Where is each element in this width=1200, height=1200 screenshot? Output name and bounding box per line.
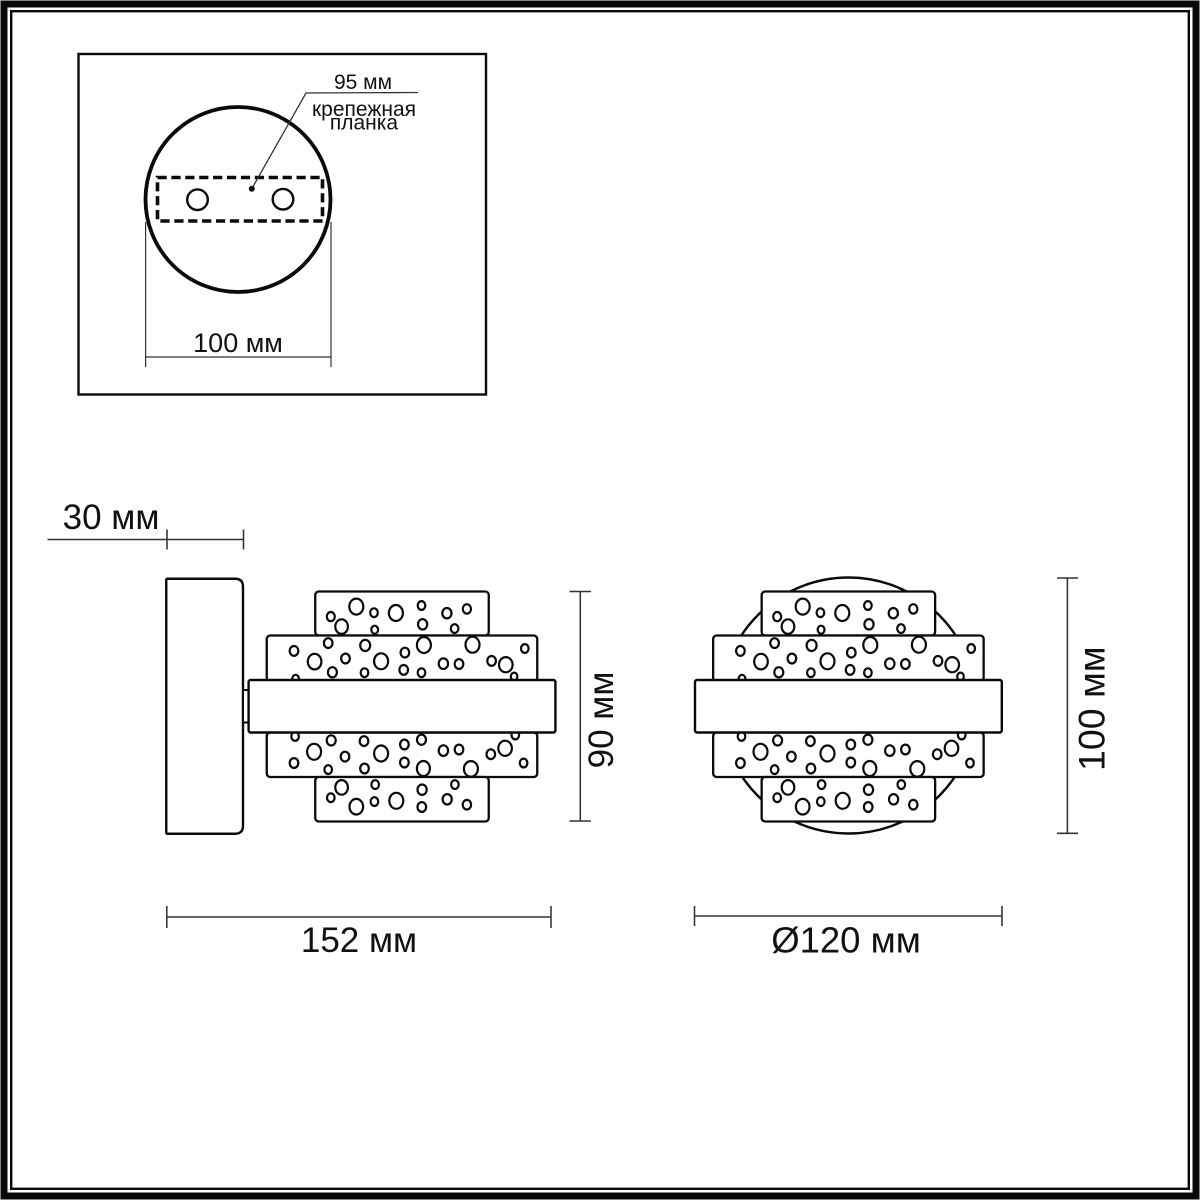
svg-text:152 мм: 152 мм [301,921,417,960]
svg-text:Ø120 мм: Ø120 мм [771,920,921,961]
svg-text:100 мм: 100 мм [193,328,283,358]
svg-text:100 мм: 100 мм [1071,646,1113,771]
svg-text:90 мм: 90 мм [582,672,621,769]
svg-text:30 мм: 30 мм [63,498,160,537]
svg-text:95 мм: 95 мм [334,71,392,94]
svg-text:планка: планка [330,112,399,135]
